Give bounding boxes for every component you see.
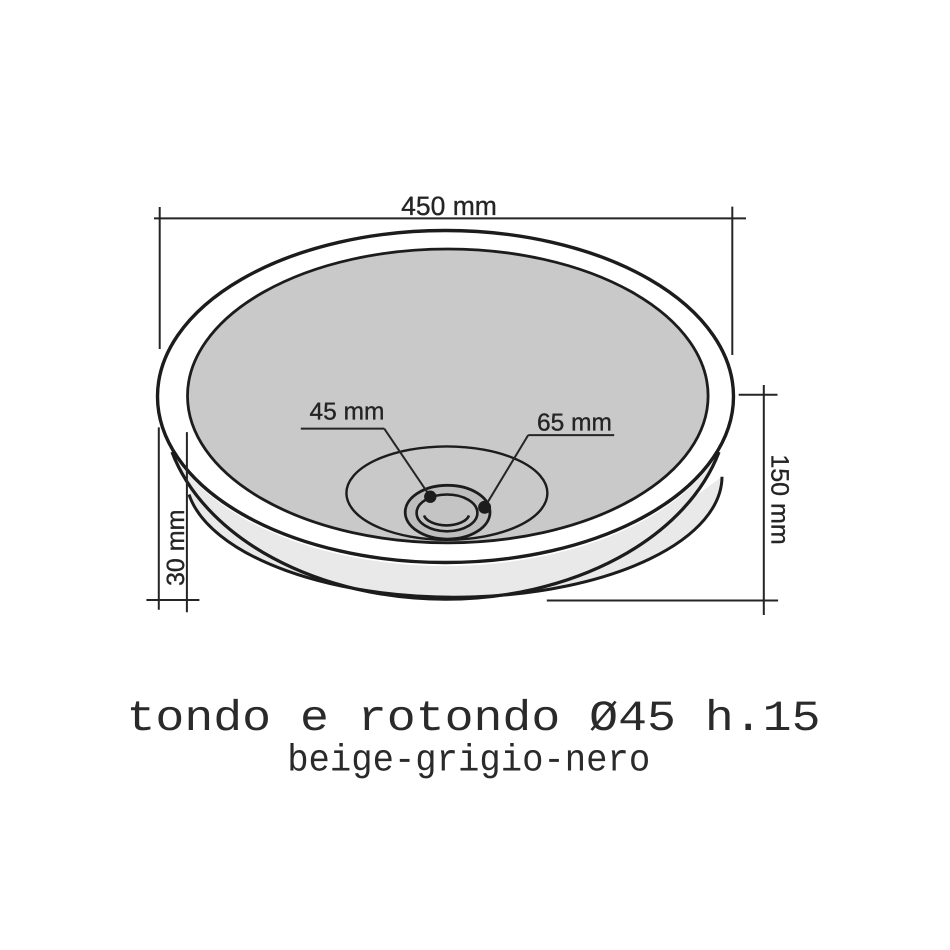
svg-text:tondo e rotondo Ø45 h.15: tondo e rotondo Ø45 h.15	[127, 694, 821, 743]
svg-text:30 mm: 30 mm	[162, 510, 190, 586]
svg-text:45 mm: 45 mm	[310, 399, 385, 426]
svg-text:150 mm: 150 mm	[766, 454, 794, 544]
svg-text:65 mm: 65 mm	[537, 410, 612, 437]
svg-text:beige-grigio-nero: beige-grigio-nero	[287, 740, 650, 783]
svg-text:450 mm: 450 mm	[401, 191, 497, 221]
